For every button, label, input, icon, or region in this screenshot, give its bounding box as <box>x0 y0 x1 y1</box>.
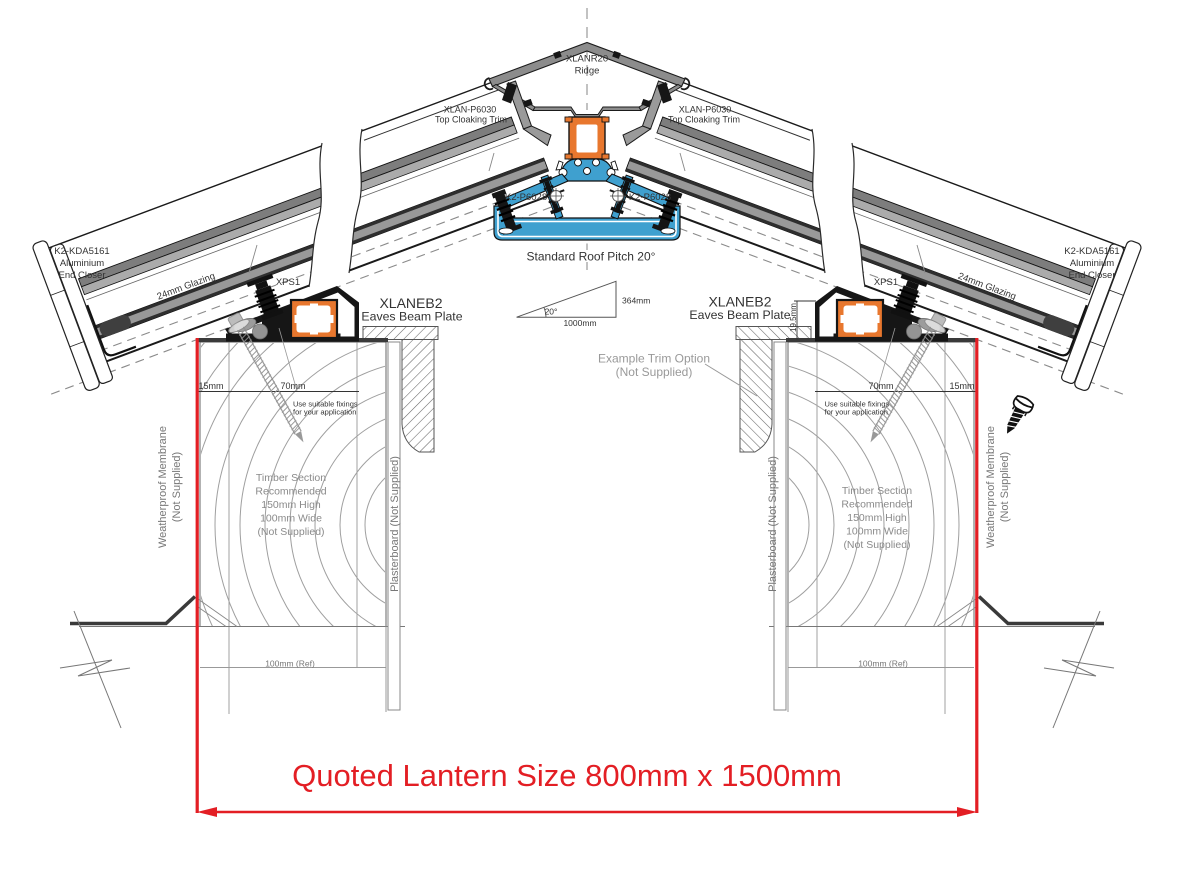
svg-text:(Not Supplied): (Not Supplied) <box>999 452 1011 522</box>
svg-text:Example Trim Option: Example Trim Option <box>598 352 710 366</box>
svg-text:Plasterboard (Not Supplied): Plasterboard (Not Supplied) <box>767 456 779 592</box>
svg-text:15mm: 15mm <box>198 381 223 391</box>
svg-text:End Closer: End Closer <box>1069 270 1116 281</box>
svg-text:70mm: 70mm <box>280 381 305 391</box>
svg-text:Top Cloaking Trim: Top Cloaking Trim <box>668 115 740 125</box>
svg-text:Recommended: Recommended <box>255 486 326 498</box>
svg-text:364mm: 364mm <box>622 296 650 306</box>
svg-text:100mm Wide: 100mm Wide <box>846 526 908 538</box>
svg-text:(Not Supplied): (Not Supplied) <box>616 365 693 379</box>
svg-text:Eaves Beam Plate: Eaves Beam Plate <box>689 308 790 322</box>
svg-text:Timber Section: Timber Section <box>256 472 326 484</box>
svg-text:100mm (Ref): 100mm (Ref) <box>858 659 908 669</box>
svg-text:Weatherproof Membrane: Weatherproof Membrane <box>985 426 997 548</box>
svg-text:for your application: for your application <box>825 408 888 417</box>
svg-text:(Not Supplied): (Not Supplied) <box>171 452 183 522</box>
svg-text:End Closer: End Closer <box>59 270 106 281</box>
svg-text:20°: 20° <box>545 307 558 317</box>
svg-text:19.5mm: 19.5mm <box>789 303 798 332</box>
svg-text:Aluminium: Aluminium <box>1070 258 1114 269</box>
svg-text:K2-P6028: K2-P6028 <box>629 192 671 203</box>
svg-text:K2-KDA5161: K2-KDA5161 <box>54 246 109 257</box>
svg-text:K2-P6028: K2-P6028 <box>505 192 547 203</box>
svg-text:(Not Supplied): (Not Supplied) <box>843 539 910 551</box>
svg-text:Aluminium: Aluminium <box>60 258 104 269</box>
svg-text:(Not Supplied): (Not Supplied) <box>257 526 324 538</box>
svg-text:for your application: for your application <box>293 408 356 417</box>
svg-text:XPS1: XPS1 <box>874 277 898 288</box>
svg-text:Timber Section: Timber Section <box>842 485 912 497</box>
svg-text:Ridge: Ridge <box>575 66 600 77</box>
svg-text:Top Cloaking Trim: Top Cloaking Trim <box>435 115 507 125</box>
svg-text:XLAN-P6030: XLAN-P6030 <box>444 105 497 115</box>
svg-text:K2-KDA5161: K2-KDA5161 <box>1064 246 1119 257</box>
svg-text:1000mm: 1000mm <box>563 318 596 328</box>
svg-text:100mm (Ref): 100mm (Ref) <box>265 659 315 669</box>
svg-text:Recommended: Recommended <box>841 499 912 511</box>
svg-text:100mm Wide: 100mm Wide <box>260 513 322 525</box>
svg-text:Standard Roof Pitch 20°: Standard Roof Pitch 20° <box>527 250 656 264</box>
svg-text:Eaves Beam Plate: Eaves Beam Plate <box>361 310 462 324</box>
svg-text:150mm High: 150mm High <box>261 499 321 511</box>
svg-text:150mm High: 150mm High <box>847 512 907 524</box>
svg-text:XPS1: XPS1 <box>276 277 300 288</box>
svg-text:15mm: 15mm <box>949 381 974 391</box>
svg-text:XLANR20: XLANR20 <box>566 54 608 65</box>
svg-text:XLAN-P6030: XLAN-P6030 <box>679 105 732 115</box>
svg-text:Plasterboard (Not Supplied): Plasterboard (Not Supplied) <box>389 456 401 592</box>
svg-text:Quoted Lantern Size 800mm x 15: Quoted Lantern Size 800mm x 1500mm <box>292 758 842 793</box>
svg-text:70mm: 70mm <box>868 381 893 391</box>
svg-text:Weatherproof Membrane: Weatherproof Membrane <box>157 426 169 548</box>
